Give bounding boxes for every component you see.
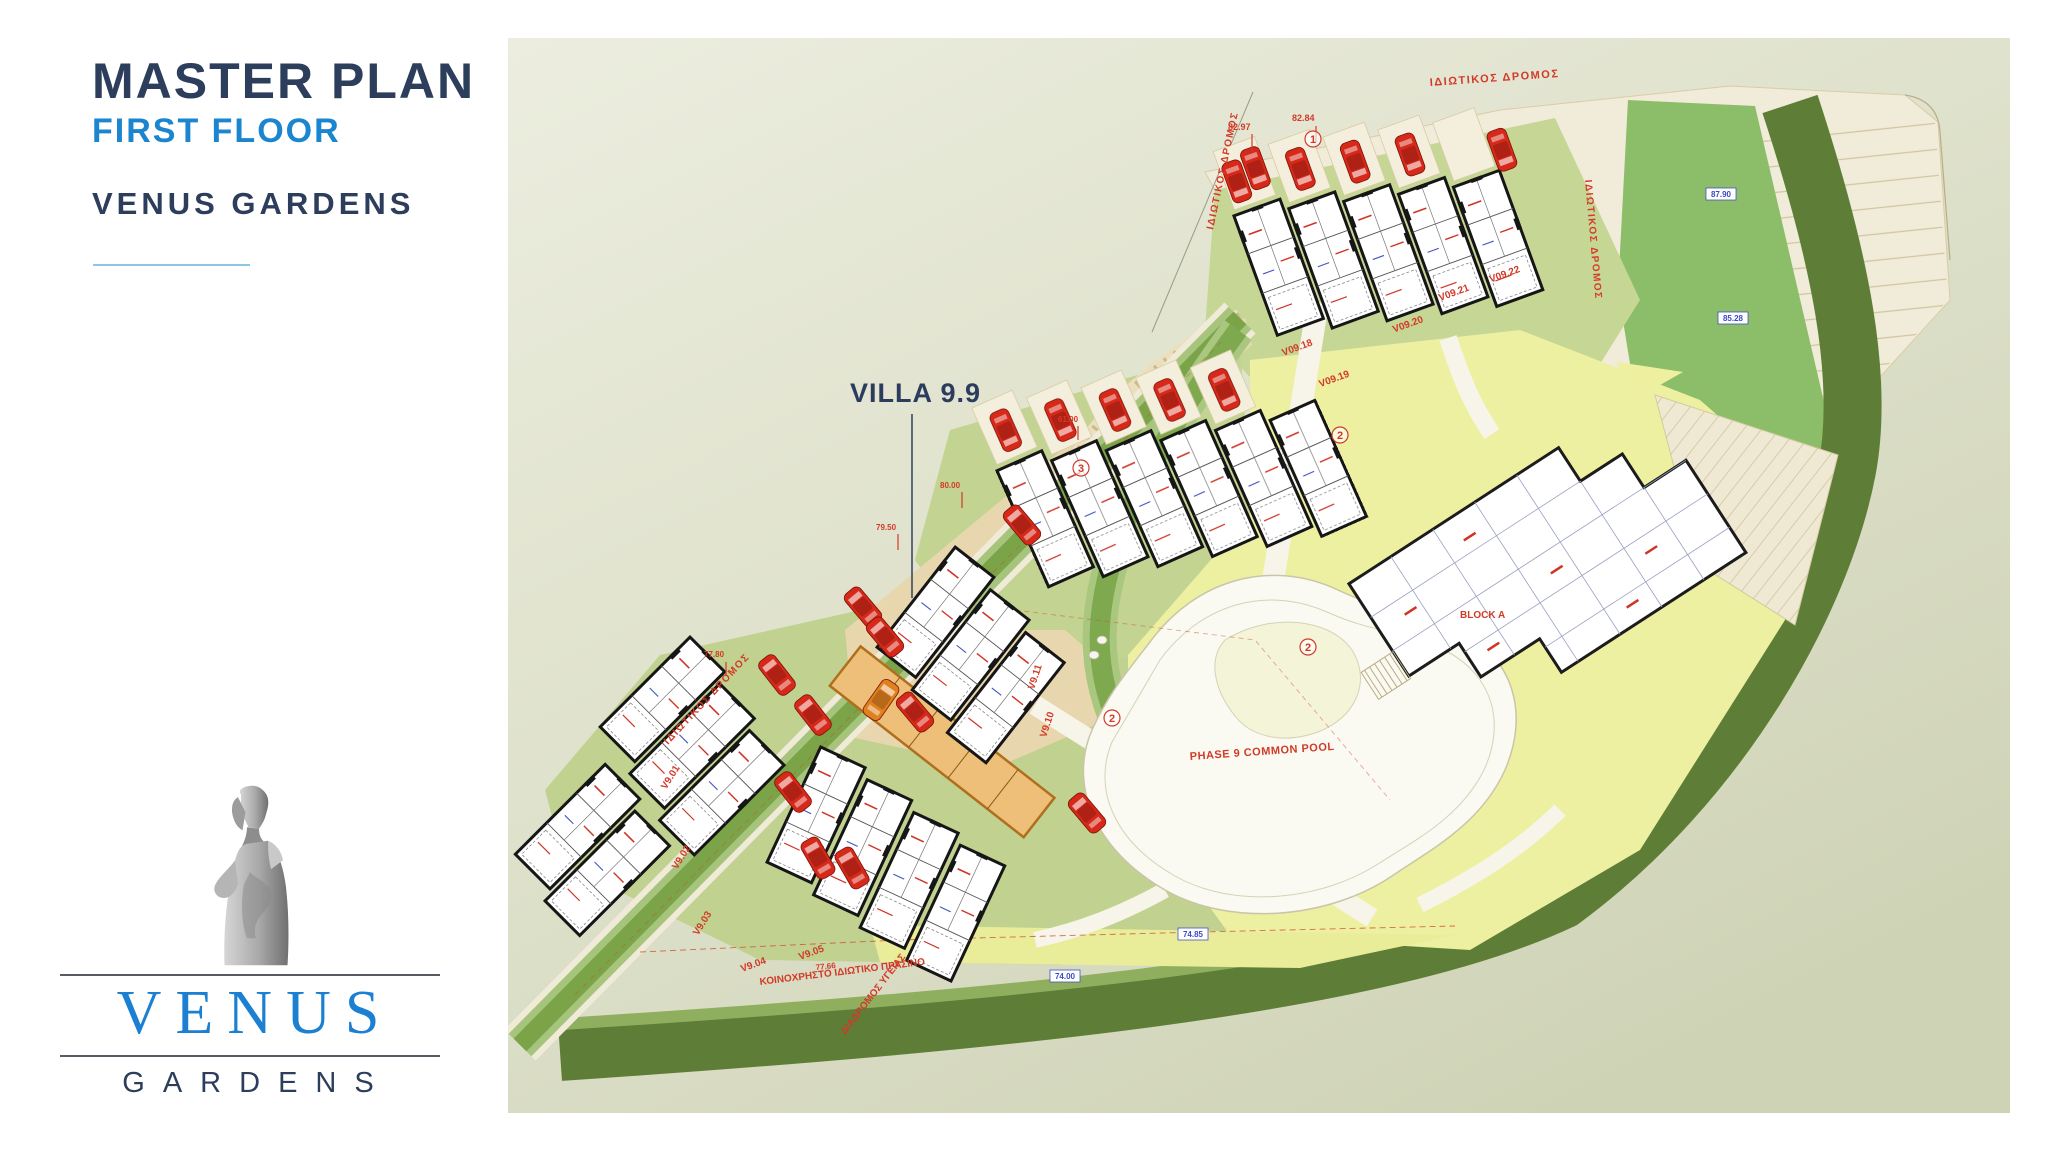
svg-text:74.85: 74.85	[1183, 930, 1204, 939]
svg-text:2: 2	[1337, 430, 1343, 442]
svg-text:2: 2	[1305, 642, 1311, 654]
venus-gardens-logo: VENUS GARDENS	[60, 782, 440, 1100]
logo-name: VENUS	[60, 974, 440, 1057]
page-subtitle: FIRST FLOOR	[92, 112, 341, 151]
svg-text:1: 1	[1310, 134, 1316, 146]
logo-subname: GARDENS	[60, 1067, 440, 1100]
svg-text:3: 3	[1078, 463, 1084, 475]
dim-label: 61.00	[1058, 415, 1079, 424]
page-title: MASTER PLAN	[92, 52, 475, 110]
dim-label: 82.84	[1292, 113, 1315, 123]
elevation-tag: 74.00	[1050, 970, 1080, 982]
elevation-tag: 85.28	[1718, 312, 1748, 324]
route-marker-2b: 2	[1300, 639, 1316, 655]
project-name: VENUS GARDENS	[92, 186, 414, 222]
title-underline	[93, 264, 250, 266]
svg-text:74.00: 74.00	[1055, 972, 1076, 981]
dim-label: 82.97	[1228, 122, 1251, 132]
route-marker-2a: 2	[1332, 427, 1348, 443]
svg-text:2: 2	[1109, 713, 1115, 725]
route-marker-3: 3	[1073, 460, 1089, 476]
elevation-tag: 87.90	[1706, 188, 1736, 200]
callout-villa-99: VILLA 9.9	[850, 378, 981, 408]
left-panel: MASTER PLAN FIRST FLOOR VENUS GARDENS VE…	[0, 0, 508, 1152]
svg-text:87.90: 87.90	[1711, 190, 1732, 199]
venus-statue-icon	[175, 782, 325, 970]
elevation-tag: 74.85	[1178, 928, 1208, 940]
block-a-label: BLOCK A	[1460, 610, 1505, 621]
route-marker-2c: 2	[1104, 710, 1120, 726]
route-marker-1: 1	[1305, 131, 1321, 147]
dim-label: 80.00	[940, 481, 961, 490]
svg-text:85.28: 85.28	[1723, 314, 1744, 323]
slide: V09.18 V09.19 V09.20 V09.21 V09.22	[0, 0, 2048, 1152]
dim-label: 77.80	[704, 650, 725, 659]
dim-label: 79.50	[876, 523, 897, 532]
